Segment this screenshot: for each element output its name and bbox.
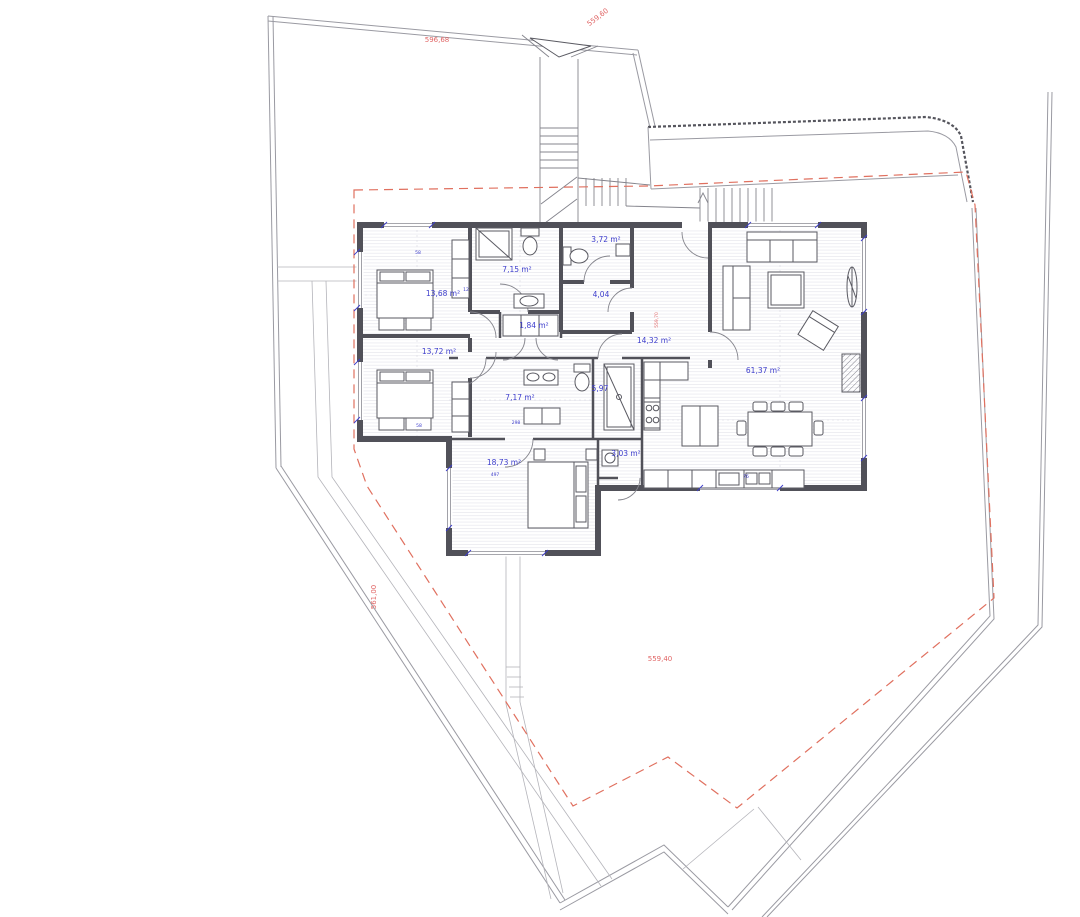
room-area-label-bedroom-1: 13,68 m²: [426, 289, 460, 298]
chair-icon: [753, 402, 767, 411]
dimension-label: 497: [491, 472, 500, 478]
gate-triangle-icon: [530, 38, 591, 57]
room-area-label-bathroom-1: 7,15 m²: [502, 265, 531, 274]
floor-plan-page: 13,68 m² 13,72 m² 7,15 m² 3,72 m² 4,04 1…: [0, 0, 1080, 917]
dimension-label: 298: [512, 420, 521, 426]
vanity-icon: [524, 370, 558, 385]
shower-icon: [604, 364, 634, 430]
room-area-label-hall-closet: 1,84 m²: [519, 321, 548, 330]
floor-plan-drawing: 13,68 m² 13,72 m² 7,15 m² 3,72 m² 4,04 1…: [0, 0, 1080, 917]
room-area-label-wc: 3,72 m²: [591, 235, 620, 244]
nightstand-icon: [534, 449, 545, 460]
chair-icon: [737, 421, 746, 435]
kitchen-island-icon: [682, 406, 718, 446]
sink-icon: [616, 244, 630, 256]
toilet-icon: [574, 364, 590, 391]
wardrobe-icon: [452, 382, 469, 432]
entrance-gate-icon: [522, 35, 598, 57]
kitchen-counter-icon: [644, 470, 804, 488]
elevation-label-northeast: 559,60: [586, 7, 610, 28]
shower-icon: [476, 228, 512, 260]
room-area-label-bedroom-2: 13,72 m²: [422, 347, 456, 356]
room-area-label-bedroom-3: 18,73 m²: [487, 458, 521, 467]
elevation-label-north: 596,68: [425, 36, 450, 44]
dimension-label: 12: [463, 287, 469, 293]
toilet-icon: [521, 228, 539, 255]
entry-door-gap: [682, 222, 708, 229]
room-area-label-living: 61,37 m²: [746, 366, 780, 375]
sink-icon: [514, 294, 544, 308]
main-stairs: [540, 57, 700, 226]
coffee-table-icon: [768, 272, 804, 308]
elevation-label-south: 559,40: [648, 655, 673, 663]
sofa-icon: [747, 232, 817, 262]
bed-icon: [528, 462, 588, 528]
dimension-label: 58: [415, 250, 421, 256]
dimension-label: 58: [416, 423, 422, 429]
chair-icon: [814, 421, 823, 435]
dimension-label: 76: [743, 474, 749, 480]
retaining-wall-band: [648, 117, 973, 202]
room-area-label-shower-room: 5,97: [592, 384, 609, 393]
room-area-label-pantry: 3,03 m²: [611, 449, 640, 458]
room-area-label-hall: 14,32 m²: [637, 336, 671, 345]
room-area-label-bathroom-2: 7,17 m²: [505, 393, 534, 402]
stair-direction-arrow-icon: [698, 193, 708, 203]
room-area-label-vestibule: 4,04: [593, 290, 610, 299]
chair-icon: [753, 447, 767, 456]
chair-icon: [789, 447, 803, 456]
chaise-icon: [723, 266, 750, 330]
building: [354, 222, 868, 557]
side-stairs: [698, 188, 772, 222]
chair-icon: [771, 447, 785, 456]
nightstand-icon: [586, 449, 597, 460]
elevation-label-terrace: 559,70: [654, 312, 660, 328]
fireplace-icon: [842, 354, 860, 392]
elevation-label-west: 561,00: [370, 585, 378, 610]
chair-icon: [771, 402, 785, 411]
chair-icon: [789, 402, 803, 411]
